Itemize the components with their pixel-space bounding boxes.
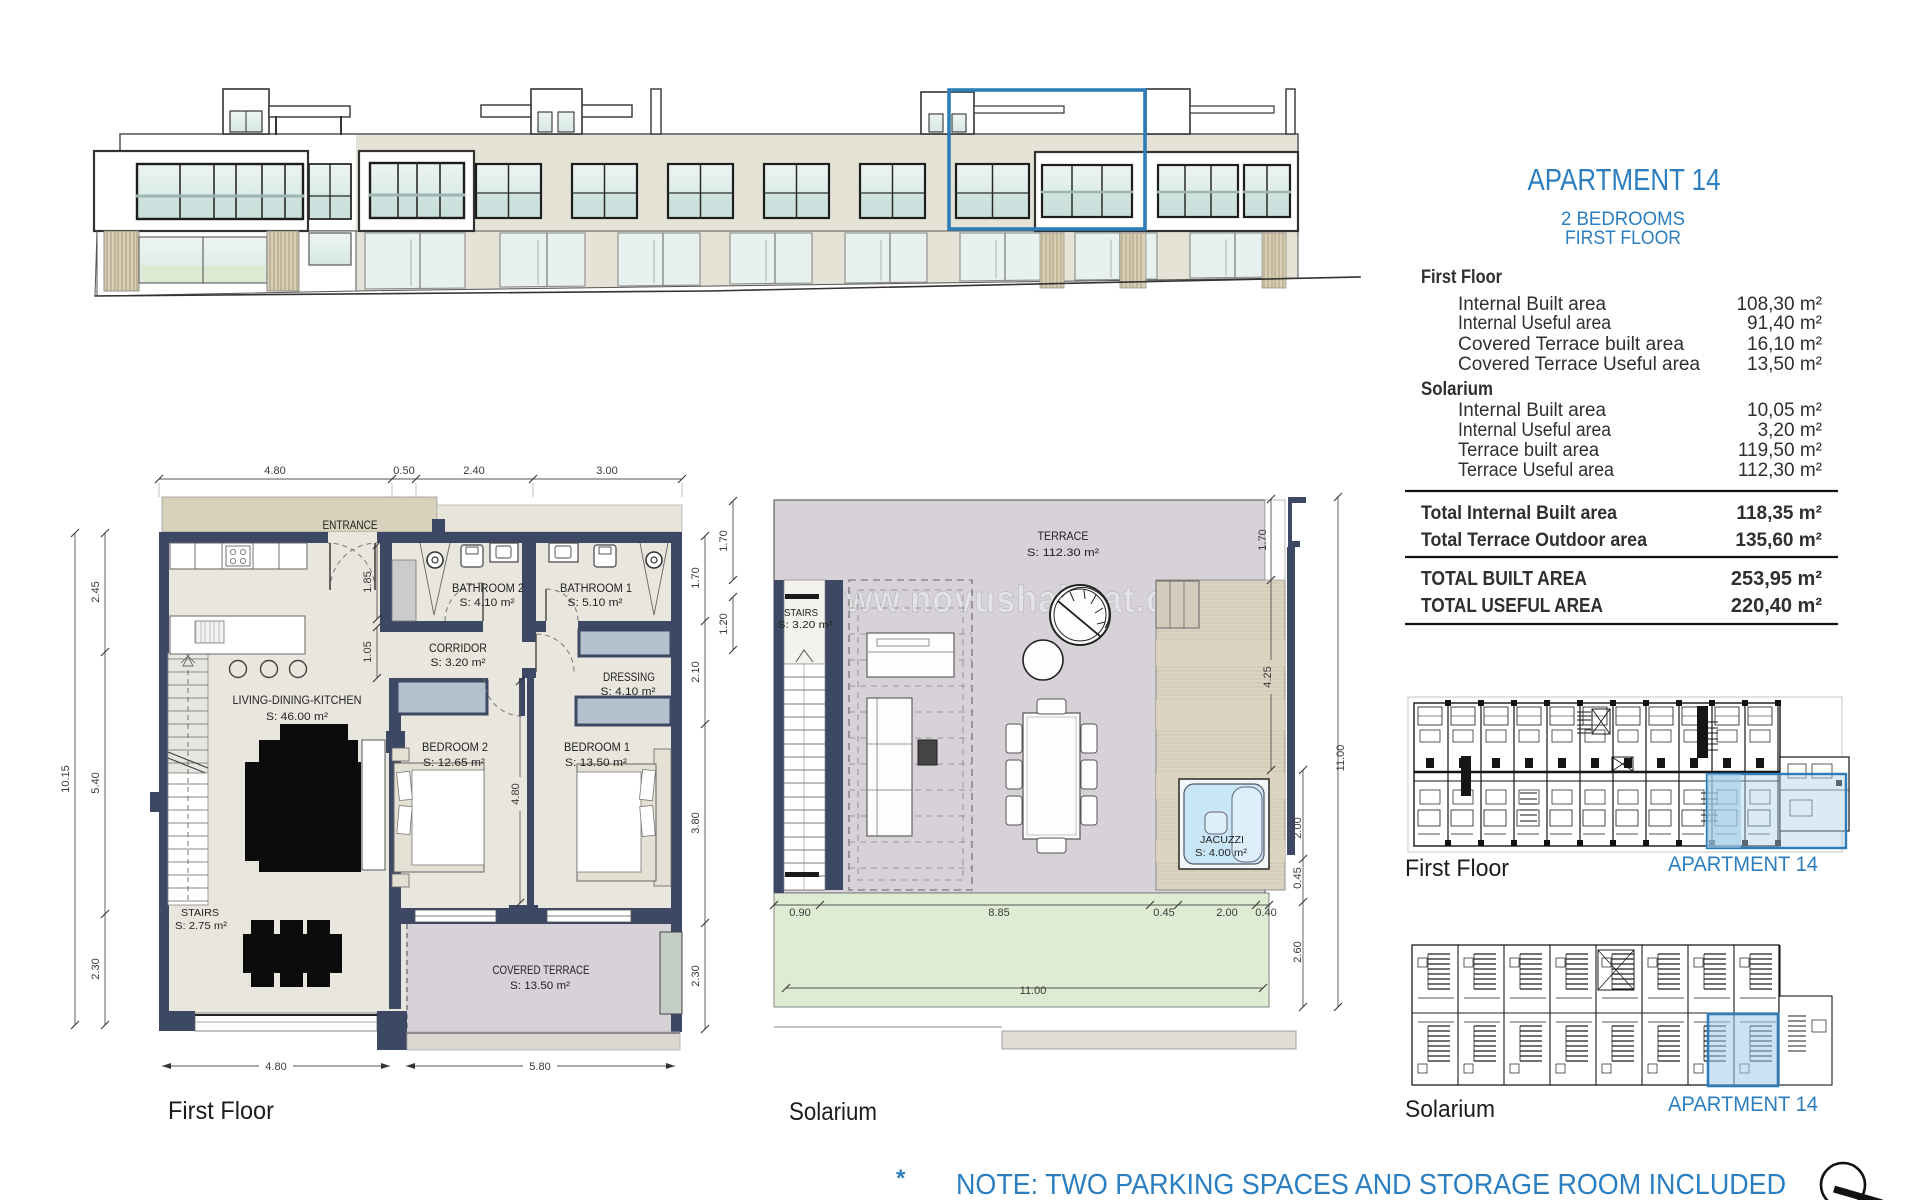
- svg-text:BATHROOM 2: BATHROOM 2: [452, 583, 524, 595]
- svg-text:CORRIDOR: CORRIDOR: [429, 643, 487, 655]
- svg-text:1.70: 1.70: [1257, 529, 1269, 550]
- svg-text:1.20: 1.20: [718, 613, 730, 634]
- svg-text:STAIRS: STAIRS: [181, 907, 219, 919]
- svg-text:3,20 m²: 3,20 m²: [1758, 420, 1822, 441]
- svg-text:S: 112.30 m²: S: 112.30 m²: [1027, 547, 1099, 559]
- svg-text:Internal Useful area: Internal Useful area: [1458, 420, 1611, 441]
- svg-text:1.05: 1.05: [362, 641, 374, 662]
- svg-text:BEDROOM 2: BEDROOM 2: [422, 742, 488, 754]
- svg-text:ENTRANCE: ENTRANCE: [323, 520, 378, 532]
- svg-text:BEDROOM 1: BEDROOM 1: [564, 742, 630, 754]
- svg-text:0.90: 0.90: [789, 907, 810, 919]
- svg-text:S: 13.50 m²: S: 13.50 m²: [565, 757, 627, 769]
- svg-text:2.30: 2.30: [690, 965, 702, 986]
- svg-text:0.45: 0.45: [1292, 867, 1304, 888]
- svg-text:TOTAL BUILT AREA: TOTAL BUILT AREA: [1421, 568, 1587, 590]
- svg-text:119,50 m²: 119,50 m²: [1738, 440, 1822, 461]
- svg-text:4.25: 4.25: [1262, 666, 1274, 687]
- svg-text:5.80: 5.80: [529, 1061, 550, 1073]
- svg-text:5.40: 5.40: [90, 772, 102, 793]
- svg-text:1.70: 1.70: [718, 530, 730, 551]
- svg-text:4.80: 4.80: [265, 1061, 286, 1073]
- svg-text:Covered Terrace Useful area: Covered Terrace Useful area: [1458, 354, 1700, 375]
- svg-text:10,05 m²: 10,05 m²: [1747, 400, 1822, 421]
- svg-text:COVERED TERRACE: COVERED TERRACE: [493, 965, 590, 977]
- svg-text:3.80: 3.80: [690, 812, 702, 833]
- svg-text:11.00: 11.00: [1335, 745, 1347, 772]
- svg-text:S: 3.20 m²: S: 3.20 m²: [778, 619, 834, 631]
- svg-text:108,30 m²: 108,30 m²: [1736, 294, 1822, 315]
- svg-text:2 BEDROOMS: 2 BEDROOMS: [1561, 209, 1685, 230]
- svg-text:4.80: 4.80: [264, 465, 285, 477]
- svg-text:2.45: 2.45: [90, 581, 102, 602]
- svg-text:NOTE: TWO PARKING SPACES AND: NOTE: TWO PARKING SPACES AND STORAGE ROO…: [956, 1169, 1786, 1200]
- svg-text:S: 12.65 m²: S: 12.65 m²: [423, 757, 485, 769]
- svg-text:0.50: 0.50: [393, 465, 414, 477]
- svg-text:First Floor: First Floor: [168, 1097, 274, 1125]
- svg-text:TERRACE: TERRACE: [1038, 531, 1089, 543]
- svg-text:JACUZZI: JACUZZI: [1200, 834, 1244, 846]
- svg-text:Terrace Useful area: Terrace Useful area: [1458, 460, 1614, 481]
- svg-text:DRESSING: DRESSING: [603, 672, 655, 684]
- svg-text:First Floor: First Floor: [1421, 267, 1503, 288]
- svg-text:Covered Terrace built area: Covered Terrace built area: [1458, 334, 1684, 355]
- svg-text:11.00: 11.00: [1020, 985, 1047, 997]
- svg-text:135,60 m²: 135,60 m²: [1735, 530, 1822, 551]
- svg-text:13,50 m²: 13,50 m²: [1747, 354, 1822, 375]
- svg-text:2.00: 2.00: [1292, 817, 1304, 838]
- svg-text:S: 4.00 m²: S: 4.00 m²: [1195, 847, 1248, 859]
- svg-text:APARTMENT 14: APARTMENT 14: [1668, 1093, 1818, 1116]
- svg-text:2.30: 2.30: [90, 958, 102, 979]
- svg-text:S: 2.75 m²: S: 2.75 m²: [175, 920, 228, 932]
- svg-text:91,40 m²: 91,40 m²: [1747, 313, 1822, 334]
- svg-text:112,30 m²: 112,30 m²: [1738, 460, 1822, 481]
- svg-text:1.85: 1.85: [362, 571, 374, 592]
- svg-text:118,35 m²: 118,35 m²: [1736, 503, 1822, 524]
- svg-text:2.10: 2.10: [690, 661, 702, 682]
- svg-text:1.70: 1.70: [690, 567, 702, 588]
- svg-text:3.00: 3.00: [596, 465, 617, 477]
- svg-text:FIRST FLOOR: FIRST FLOOR: [1565, 228, 1681, 249]
- svg-text:Internal Useful area: Internal Useful area: [1458, 313, 1611, 334]
- svg-text:0.45: 0.45: [1153, 907, 1174, 919]
- svg-text:LIVING-DINING-KITCHEN: LIVING-DINING-KITCHEN: [233, 695, 362, 707]
- svg-text:APARTMENT 14: APARTMENT 14: [1668, 853, 1818, 876]
- svg-text:S: 4.10 m²: S: 4.10 m²: [601, 686, 656, 698]
- svg-text:4.80: 4.80: [510, 783, 522, 804]
- svg-text:STAIRS: STAIRS: [784, 607, 818, 619]
- svg-text:10.15: 10.15: [60, 765, 72, 793]
- svg-text:Solarium: Solarium: [1405, 1096, 1495, 1123]
- svg-text:16,10 m²: 16,10 m²: [1747, 334, 1822, 355]
- svg-text:First Floor: First Floor: [1405, 855, 1509, 882]
- svg-text:2.00: 2.00: [1216, 907, 1237, 919]
- svg-text:253,95 m²: 253,95 m²: [1731, 568, 1823, 590]
- svg-text:Solarium: Solarium: [789, 1098, 877, 1126]
- svg-text:Total Terrace Outdoor area: Total Terrace Outdoor area: [1421, 530, 1647, 551]
- svg-text:APARTMENT 14: APARTMENT 14: [1528, 162, 1721, 197]
- svg-text:BATHROOM 1: BATHROOM 1: [560, 583, 632, 595]
- svg-text:Internal Built area: Internal Built area: [1458, 294, 1606, 315]
- svg-text:0.40: 0.40: [1255, 907, 1276, 919]
- svg-text:S: 46.00 m²: S: 46.00 m²: [266, 711, 328, 723]
- svg-text:Solarium: Solarium: [1421, 379, 1493, 400]
- svg-text:8.85: 8.85: [988, 907, 1009, 919]
- svg-text:S: 13.50 m²: S: 13.50 m²: [510, 980, 570, 992]
- svg-text:www.novushabitat.c: www.novushabitat.c: [817, 579, 1166, 621]
- svg-text:TOTAL USEFUL AREA: TOTAL USEFUL AREA: [1421, 595, 1603, 617]
- svg-text:S: 5.10 m²: S: 5.10 m²: [568, 597, 623, 609]
- svg-text:S: 3.20 m²: S: 3.20 m²: [431, 657, 486, 669]
- svg-text:Internal Built area: Internal Built area: [1458, 400, 1606, 421]
- svg-text:S: 4.10 m²: S: 4.10 m²: [460, 597, 515, 609]
- svg-text:2.40: 2.40: [463, 465, 484, 477]
- svg-text:Total Internal Built area: Total Internal Built area: [1421, 503, 1617, 524]
- svg-text:220,40 m²: 220,40 m²: [1731, 595, 1823, 617]
- svg-text:*: *: [896, 1165, 906, 1192]
- svg-text:2.60: 2.60: [1292, 941, 1304, 962]
- svg-text:Terrace built area: Terrace built area: [1458, 440, 1599, 461]
